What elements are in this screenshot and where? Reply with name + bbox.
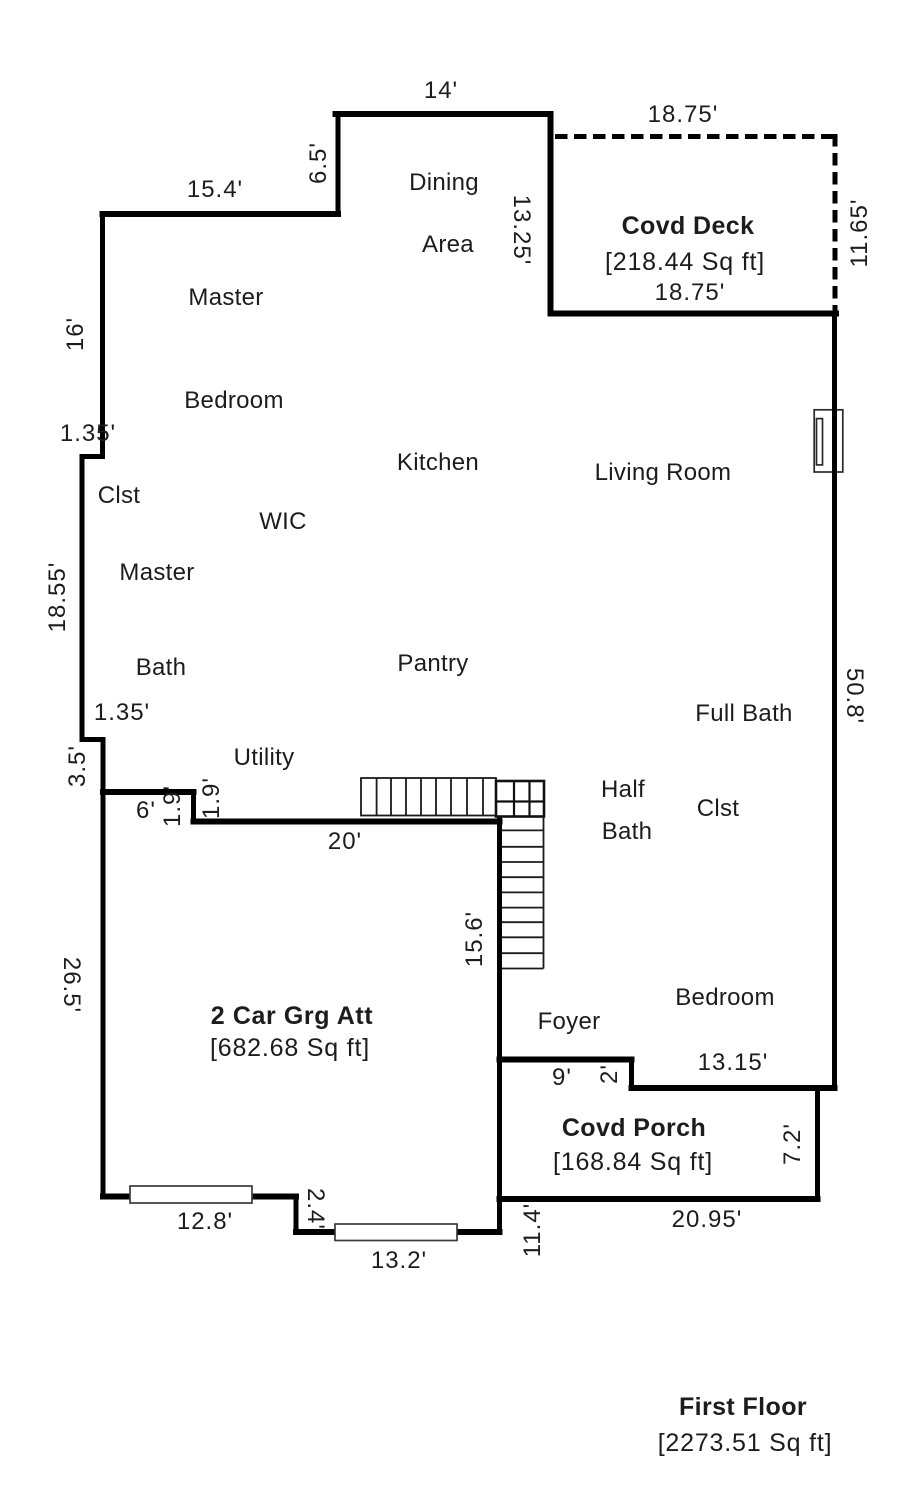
svg-text:Master: Master (119, 559, 194, 586)
svg-text:Utility: Utility (234, 744, 295, 771)
svg-text:Covd Porch: Covd Porch (562, 1114, 706, 1142)
svg-text:9': 9' (552, 1064, 572, 1091)
svg-text:15.6': 15.6' (461, 911, 488, 967)
svg-text:1.9': 1.9' (198, 777, 225, 819)
svg-text:[168.84 Sq ft]: [168.84 Sq ft] (553, 1148, 713, 1176)
svg-text:Half: Half (601, 776, 645, 803)
svg-text:11.4': 11.4' (519, 1203, 546, 1258)
svg-text:26.5': 26.5' (58, 957, 85, 1013)
svg-text:Dining: Dining (409, 169, 479, 196)
svg-text:Area: Area (422, 231, 474, 258)
svg-text:13.25': 13.25' (508, 195, 535, 266)
svg-text:Kitchen: Kitchen (397, 449, 479, 476)
svg-text:Clst: Clst (98, 482, 141, 509)
svg-text:13.15': 13.15' (698, 1049, 769, 1076)
svg-text:1.9': 1.9' (159, 785, 186, 827)
svg-text:Living Room: Living Room (595, 459, 732, 486)
svg-text:Bath: Bath (136, 654, 187, 681)
svg-text:Foyer: Foyer (538, 1008, 601, 1035)
svg-text:18.75': 18.75' (655, 279, 726, 306)
svg-text:7.2': 7.2' (779, 1123, 806, 1165)
svg-text:11.65': 11.65' (846, 199, 873, 268)
svg-text:12.8': 12.8' (177, 1208, 233, 1235)
svg-text:[682.68 Sq ft]: [682.68 Sq ft] (210, 1034, 370, 1062)
svg-text:18.55': 18.55' (44, 562, 71, 633)
svg-text:3.5': 3.5' (64, 745, 91, 787)
svg-text:2': 2' (596, 1064, 623, 1084)
svg-text:Master: Master (188, 284, 263, 311)
svg-text:2.4': 2.4' (302, 1188, 329, 1230)
svg-text:6.5': 6.5' (305, 142, 332, 184)
svg-text:Bedroom: Bedroom (675, 984, 774, 1011)
svg-text:1.35': 1.35' (60, 420, 116, 447)
svg-text:6': 6' (136, 797, 156, 824)
svg-text:20': 20' (328, 828, 362, 855)
svg-text:Clst: Clst (697, 795, 740, 822)
svg-text:15.4': 15.4' (187, 176, 243, 203)
svg-text:Bedroom: Bedroom (184, 387, 283, 414)
svg-text:Bath: Bath (602, 818, 653, 845)
svg-text:20.95': 20.95' (672, 1206, 743, 1233)
svg-text:[218.44 Sq ft]: [218.44 Sq ft] (605, 248, 765, 276)
svg-text:Covd Deck: Covd Deck (622, 212, 755, 240)
svg-text:18.75': 18.75' (648, 101, 719, 128)
svg-text:WIC: WIC (259, 508, 307, 535)
svg-text:13.2': 13.2' (371, 1247, 427, 1274)
svg-text:16': 16' (62, 317, 89, 351)
svg-text:Full Bath: Full Bath (695, 700, 792, 727)
svg-text:Pantry: Pantry (397, 650, 468, 677)
svg-text:14': 14' (424, 77, 458, 104)
svg-text:50.8': 50.8' (841, 668, 868, 724)
svg-text:2 Car Grg Att: 2 Car Grg Att (211, 1002, 374, 1030)
svg-text:1.35': 1.35' (94, 699, 150, 726)
svg-text:[2273.51 Sq ft]: [2273.51 Sq ft] (658, 1429, 833, 1457)
svg-text:First Floor: First Floor (679, 1393, 807, 1421)
